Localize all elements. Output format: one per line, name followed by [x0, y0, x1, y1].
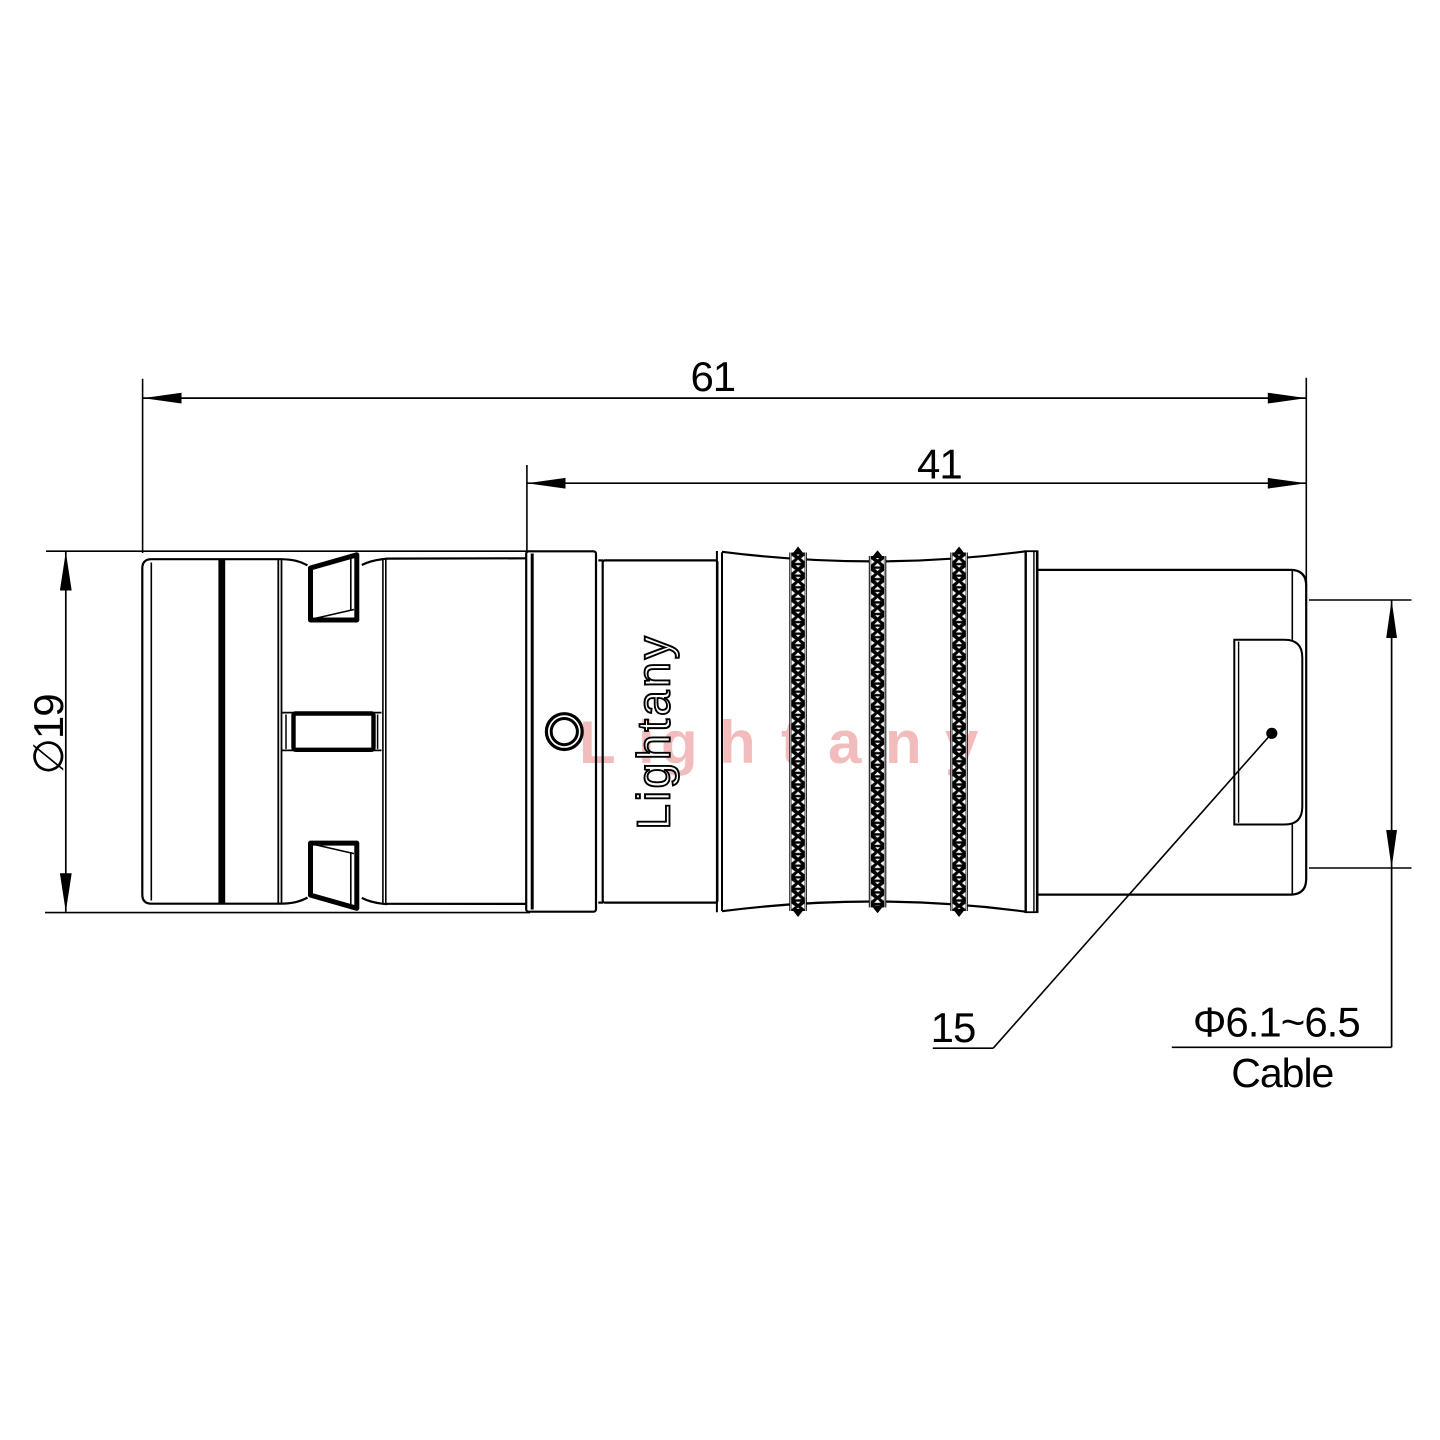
svg-text:Lightany: Lightany: [628, 633, 680, 829]
svg-text:61: 61: [690, 353, 735, 400]
svg-text:Φ6.1~6.5: Φ6.1~6.5: [1193, 999, 1360, 1046]
svg-text:∅19: ∅19: [25, 694, 72, 774]
svg-text:15: 15: [931, 1004, 976, 1051]
svg-text:41: 41: [917, 441, 962, 488]
svg-text:Cable: Cable: [1231, 1050, 1333, 1096]
